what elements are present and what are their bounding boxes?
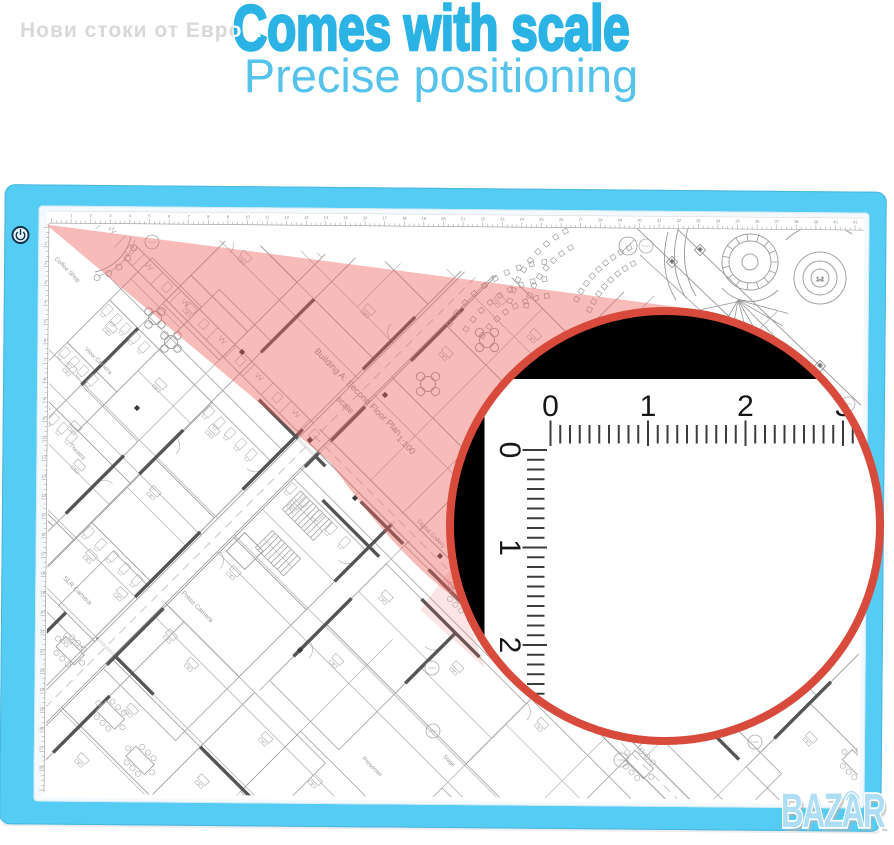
svg-text:0: 0 bbox=[493, 442, 526, 459]
svg-text:0: 0 bbox=[542, 390, 559, 423]
svg-text:BAZAR: BAZAR bbox=[781, 783, 886, 837]
svg-text:1-2: 1-2 bbox=[816, 277, 823, 283]
svg-text:Нови стоки от Евро...: Нови стоки от Евро... bbox=[20, 19, 263, 42]
svg-text:Precise positioning: Precise positioning bbox=[244, 49, 639, 102]
svg-text:2: 2 bbox=[493, 637, 526, 654]
svg-text:1: 1 bbox=[640, 390, 657, 423]
svg-text:1: 1 bbox=[493, 539, 526, 556]
svg-text:2: 2 bbox=[737, 390, 754, 423]
